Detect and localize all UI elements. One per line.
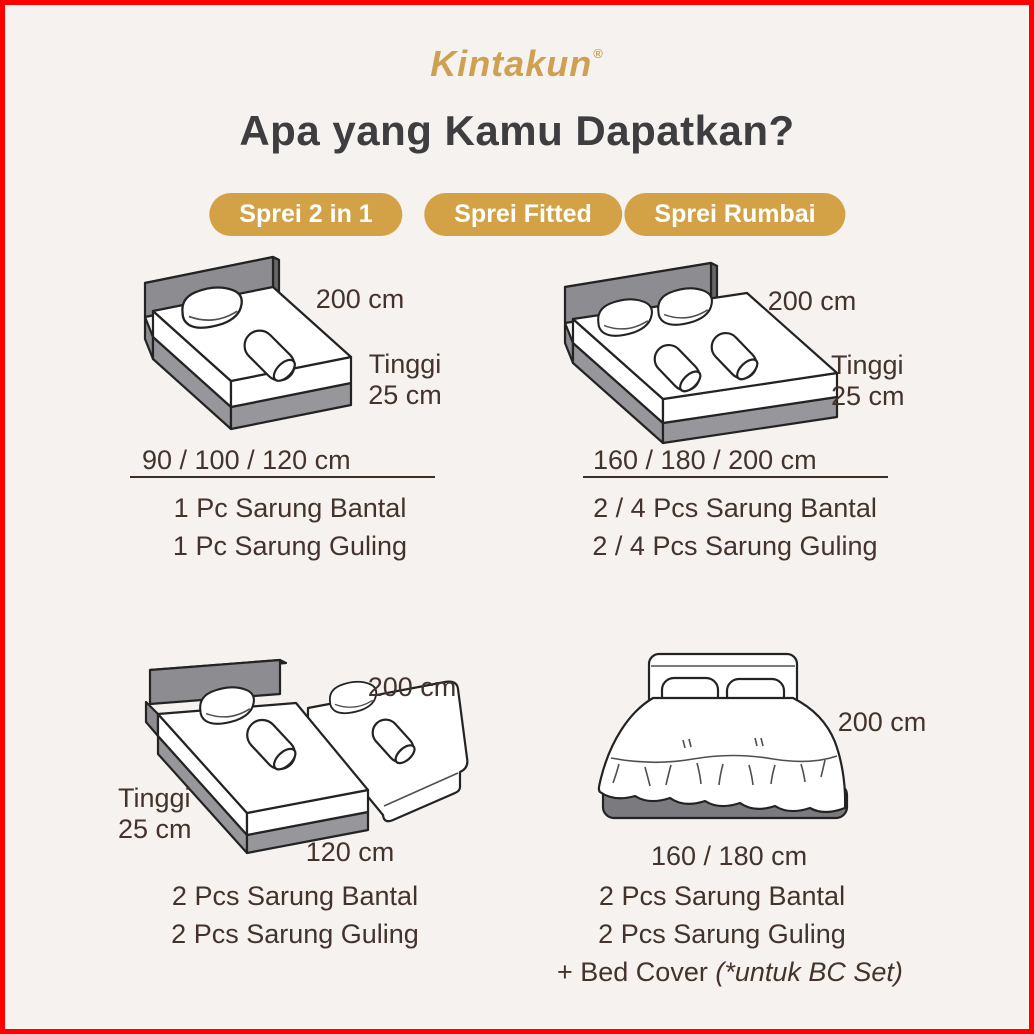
sizes-label-rumbai: 160 / 180 cm [651,841,801,872]
registered-mark: ® [593,46,604,61]
contents-list-single: 1 Pc Sarung Bantal 1 Pc Sarung Guling [130,489,450,565]
length-label-2in1: 200 cm [357,672,467,703]
brand-logo-text: Kintakun [430,43,592,84]
list-item: 1 Pc Sarung Guling [130,527,450,565]
badge-sprei-fitted: Sprei Fitted [424,193,622,236]
list-item: 2 Pcs Sarung Bantal [557,877,887,915]
sizes-label-double: 160 / 180 / 200 cm [593,445,803,476]
height-value: 25 cm [831,381,921,412]
height-word: Tinggi [365,349,445,380]
rumbai-bed-illustration [583,638,873,840]
single-bed-illustration [123,255,373,435]
divider-line [130,476,435,478]
height-word: Tinggi [831,350,921,381]
list-item: 2 / 4 Pcs Sarung Guling [575,527,895,565]
page-title: Apa yang Kamu Dapatkan? [5,107,1029,155]
contents-list-double: 2 / 4 Pcs Sarung Bantal 2 / 4 Pcs Sarung… [575,489,895,565]
list-item: 1 Pc Sarung Bantal [130,489,450,527]
list-item: 2 Pcs Sarung Guling [557,915,887,953]
length-label-rumbai: 200 cm [827,707,937,738]
height-label-2in1: Tinggi 25 cm [118,783,208,845]
height-label-double: Tinggi 25 cm [831,350,921,412]
height-word: Tinggi [118,783,208,814]
length-label-single: 200 cm [305,284,415,315]
contents-list-2in1: 2 Pcs Sarung Bantal 2 Pcs Sarung Guling [135,877,455,953]
list-item-bedcover: + Bed Cover (*untuk BC Set) [557,953,887,991]
height-value: 25 cm [118,814,208,845]
length-label-double: 200 cm [757,286,867,317]
height-value: 25 cm [365,380,445,411]
sizes-label-single: 90 / 100 / 120 cm [142,445,342,476]
badge-sprei-rumbai: Sprei Rumbai [624,193,845,236]
list-item: 2 Pcs Sarung Guling [135,915,455,953]
brand-logo: Kintakun® [5,43,1029,85]
list-item: 2 Pcs Sarung Bantal [135,877,455,915]
contents-list-rumbai: 2 Pcs Sarung Bantal 2 Pcs Sarung Guling … [557,877,887,991]
divider-line [583,476,888,478]
infographic-canvas: Kintakun® Apa yang Kamu Dapatkan? Sprei … [0,0,1034,1034]
height-label-single: Tinggi 25 cm [365,349,445,411]
width-label-2in1: 120 cm [298,837,402,868]
bedcover-text: + Bed Cover [557,957,715,987]
bedcover-note: (*untuk BC Set) [715,957,903,987]
list-item: 2 / 4 Pcs Sarung Bantal [575,489,895,527]
badge-sprei-2in1: Sprei 2 in 1 [209,193,402,236]
